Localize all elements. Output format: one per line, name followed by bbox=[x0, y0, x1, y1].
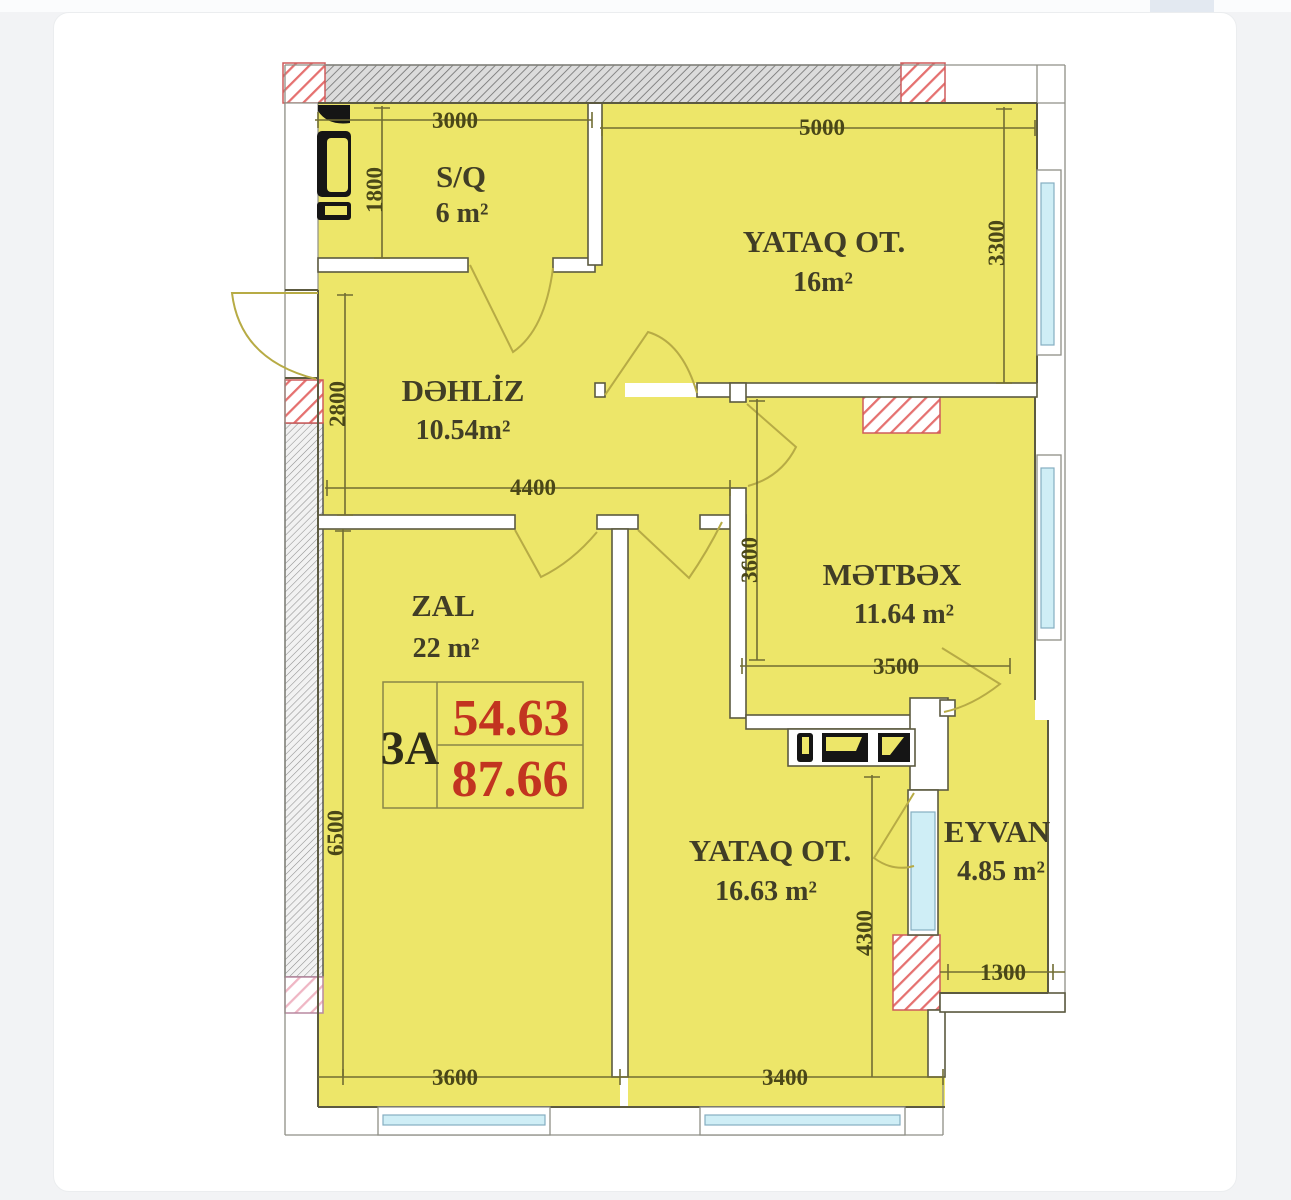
eyvan-window bbox=[911, 812, 935, 930]
column-top-left bbox=[283, 63, 325, 103]
room-kitchen-area: 11.64 m² bbox=[854, 599, 954, 630]
dim-left-total-height: 6500 bbox=[323, 810, 348, 856]
floorplan-drawing: 3000 1800 5000 3300 2800 4400 3600 3500 … bbox=[0, 0, 1291, 1200]
column-eyvan bbox=[893, 935, 940, 1010]
zal-window bbox=[383, 1115, 545, 1125]
room-bedroom2-area: 16.63 m² bbox=[715, 876, 817, 907]
dim-bedroom1-width: 5000 bbox=[799, 115, 845, 140]
bedroom2-window bbox=[705, 1115, 900, 1125]
top-exterior-wall-hatched bbox=[320, 65, 903, 103]
dim-eyvan-width: 1300 bbox=[980, 960, 1026, 985]
room-hallway-area: 10.54m² bbox=[416, 415, 511, 446]
room-hallway-name: DƏHLİZ bbox=[402, 373, 525, 408]
column-top-right bbox=[901, 63, 945, 103]
dim-hallway-height: 2800 bbox=[325, 381, 350, 427]
room-bedroom1-area: 16m² bbox=[793, 267, 853, 298]
room-kitchen-name: MƏTBƏX bbox=[823, 557, 962, 592]
kitchen-counter bbox=[788, 729, 915, 766]
dim-hallway-width: 4400 bbox=[510, 475, 556, 500]
dim-bedroom1-height: 3300 bbox=[984, 220, 1009, 266]
unit-code: 3A bbox=[381, 722, 440, 775]
room-sq-name: S/Q bbox=[436, 159, 486, 194]
dim-kitchen-height: 3600 bbox=[737, 537, 762, 583]
bedroom1-window bbox=[1041, 183, 1054, 345]
room-sq-area: 6 m² bbox=[436, 198, 489, 229]
entrance-door-arc bbox=[232, 293, 318, 379]
dim-sq-height: 1800 bbox=[362, 167, 387, 213]
dim-sq-width: 3000 bbox=[432, 108, 478, 133]
dim-bedroom2-height: 4300 bbox=[852, 910, 877, 956]
kitchen-window bbox=[1041, 468, 1054, 628]
dim-bottom-left: 3600 bbox=[432, 1065, 478, 1090]
dim-kitchen-width: 3500 bbox=[873, 654, 919, 679]
unit-lower-area: 87.66 bbox=[452, 751, 569, 808]
room-zal-area: 22 m² bbox=[413, 633, 480, 664]
room-eyvan-name: EYVAN bbox=[944, 814, 1050, 849]
room-eyvan-area: 4.85 m² bbox=[957, 856, 1045, 887]
unit-upper-area: 54.63 bbox=[453, 690, 570, 747]
room-bedroom1-name: YATAQ OT. bbox=[743, 224, 906, 259]
room-bedroom2-name: YATAQ OT. bbox=[689, 833, 852, 868]
room-zal-name: ZAL bbox=[411, 588, 475, 623]
dim-bottom-right: 3400 bbox=[762, 1065, 808, 1090]
